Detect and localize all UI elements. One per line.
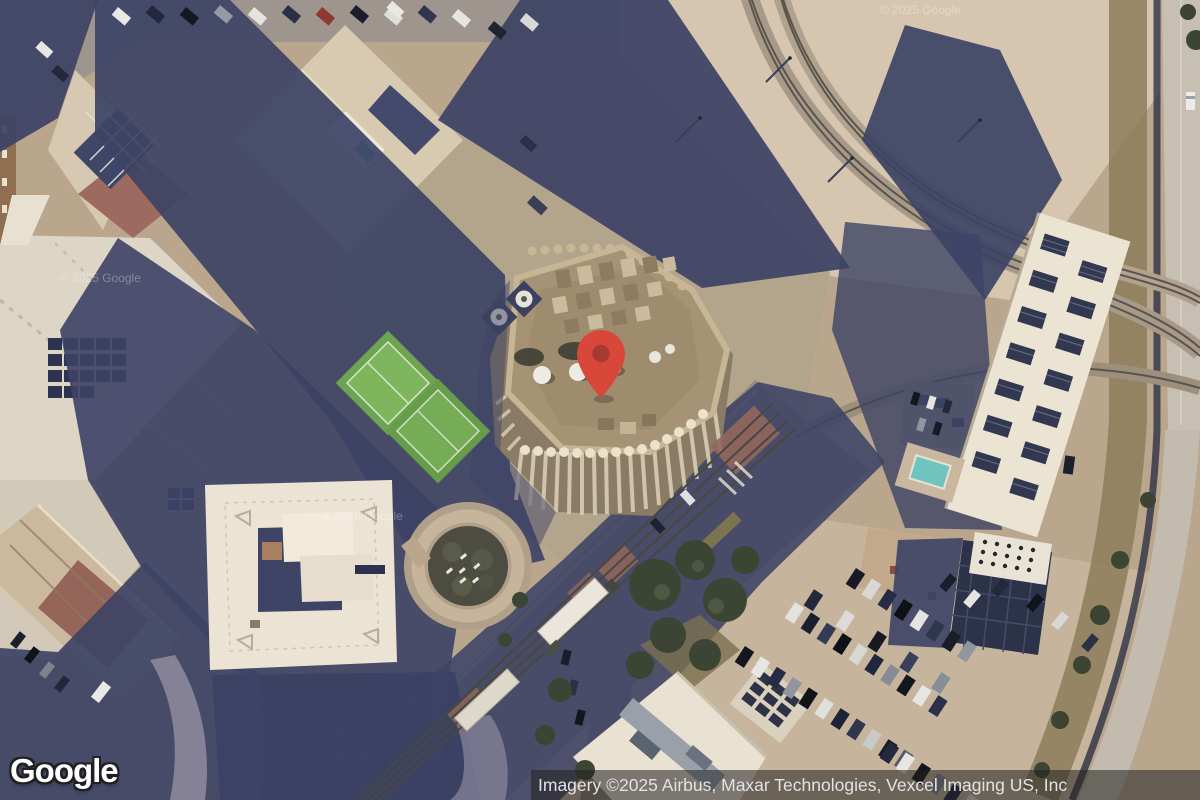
map-pin[interactable] bbox=[577, 330, 625, 398]
tile-watermark: © 2025 Google bbox=[322, 509, 403, 523]
imagery-attribution-bar: Imagery ©2025 Airbus, Maxar Technologies… bbox=[531, 770, 1200, 800]
pin-body bbox=[577, 330, 625, 398]
tile-watermark: © 2025 Google bbox=[880, 3, 961, 17]
imagery-attribution-text: Imagery ©2025 Airbus, Maxar Technologies… bbox=[538, 775, 1067, 796]
tile-watermark: © 2025 Google bbox=[60, 271, 141, 285]
google-logo[interactable]: Google bbox=[10, 752, 118, 790]
satellite-map-viewport[interactable]: © 2025 Google © 2025 Google © 2025 Googl… bbox=[0, 0, 1200, 800]
map-pin-icon bbox=[577, 330, 625, 398]
satellite-imagery: © 2025 Google © 2025 Google © 2025 Googl… bbox=[0, 0, 1200, 800]
pin-inner-dot bbox=[592, 345, 609, 362]
